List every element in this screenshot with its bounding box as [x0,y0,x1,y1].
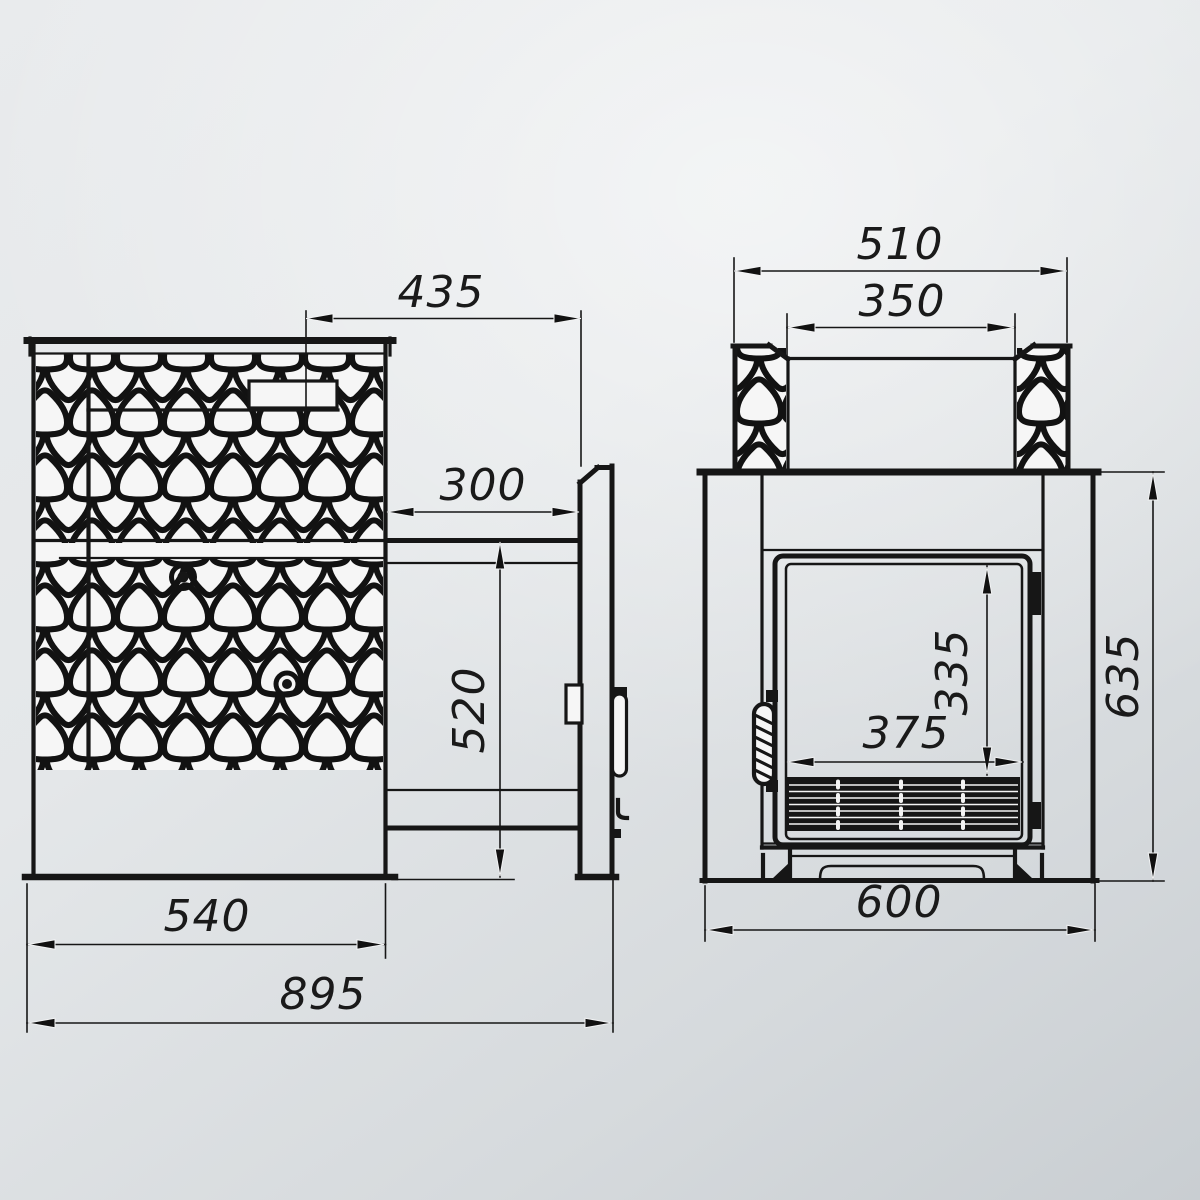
rear-outlet-cover [249,381,337,408]
arrowhead [995,757,1022,767]
front-view: 510 350 335 375 [700,219,1164,941]
latch-lever [618,800,627,818]
dim-510-label: 510 [857,219,944,270]
arrowhead [585,1018,612,1028]
door [754,556,1041,845]
ash-grate [787,777,1020,831]
arrowhead [982,747,992,774]
arrowhead [306,314,333,324]
dim-635: 635 [1098,472,1164,881]
dim-335-label: 335 [927,629,978,716]
dim-300: 300 [386,460,580,517]
arrowhead [734,266,761,276]
dim-600: 600 [705,877,1095,941]
left-pillar-mesh [737,348,786,469]
arrowhead [1067,925,1094,935]
dim-300-label: 300 [440,460,527,511]
dim-635-label: 635 [1098,633,1149,720]
hinge-nub [612,829,621,838]
hinge-top [1031,572,1041,615]
latch-notch [566,685,582,723]
side-view: 435 300 520 540 [25,267,627,1032]
base-legs [763,848,1042,880]
arrowhead [982,567,992,594]
dim-350-label: 350 [859,276,946,327]
right-pillar-mesh [1017,348,1066,469]
chimney-collar [733,345,1070,470]
dim-895: 895 [27,880,613,1032]
dim-350: 350 [787,276,1015,356]
dim-520-label: 520 [444,667,495,754]
arrowhead [495,849,505,876]
arrowhead [987,323,1014,333]
arrowhead [387,507,414,517]
door-handle-side [613,694,627,776]
arrowhead [495,542,505,569]
door-plate [566,466,627,877]
arrowhead [28,940,55,950]
arrowhead [706,925,733,935]
arrowhead [1040,266,1067,276]
dim-600-label: 600 [856,877,943,928]
dim-895-label: 895 [280,969,367,1020]
arrowhead [554,314,581,324]
arrowhead [788,323,815,333]
arrowhead [552,507,579,517]
arrowhead [357,940,384,950]
technical-drawing: 435 300 520 540 [0,0,1200,1200]
hinge-bottom [1031,802,1041,829]
dim-540-label: 540 [164,891,251,942]
dim-435-label: 435 [398,267,485,318]
arrowhead [28,1018,55,1028]
arrowhead [1148,473,1158,500]
arrowhead [1148,853,1158,880]
arrowhead [787,757,814,767]
dim-375-label: 375 [863,708,950,759]
